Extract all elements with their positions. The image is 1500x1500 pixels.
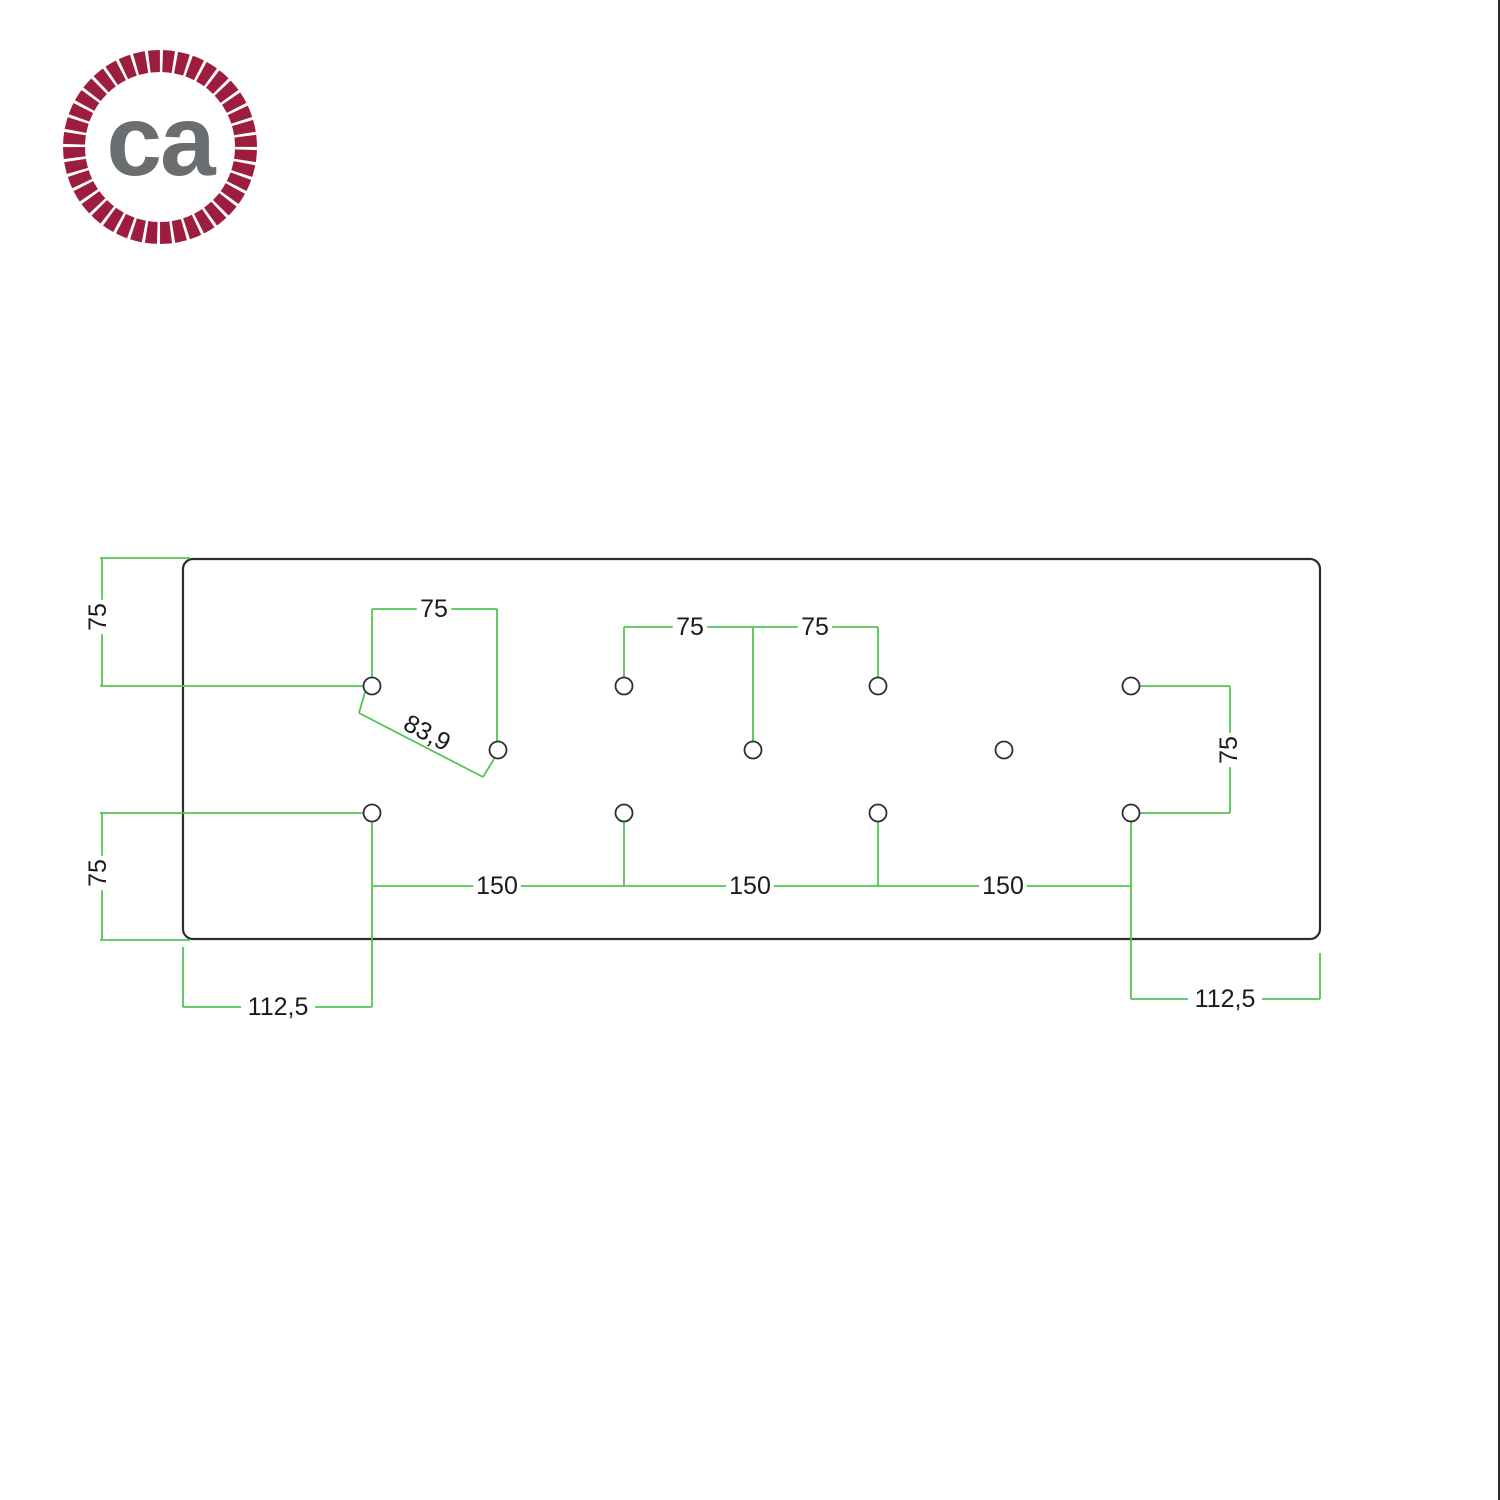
dimension-label: 75: [1215, 733, 1243, 767]
dimension-text: 75: [676, 613, 704, 641]
hole: [1123, 678, 1140, 695]
hole: [364, 678, 381, 695]
dimension-text: 83,9: [399, 709, 455, 757]
dimension-text: 75: [84, 859, 112, 887]
hole: [616, 805, 633, 822]
dimension-label: 75: [798, 613, 832, 641]
hole: [616, 678, 633, 695]
dimension-text: 150: [476, 872, 518, 900]
dimension-label: 75: [673, 613, 707, 641]
dimension-line: [359, 692, 365, 713]
dimension-text: 150: [729, 872, 771, 900]
dimension-text: 75: [801, 613, 829, 641]
dimension-label: 75: [84, 856, 112, 890]
hole: [745, 742, 762, 759]
dimension-label: 75: [417, 595, 451, 623]
dimension-line: [483, 759, 494, 777]
hole: [996, 742, 1013, 759]
hole: [870, 805, 887, 822]
dimension-label: 112,5: [241, 993, 315, 1021]
dimension-text: 112,5: [248, 993, 309, 1021]
dimension-label: 150: [726, 872, 774, 900]
dimension-label: 112,5: [1188, 985, 1262, 1013]
dimension-text: 150: [982, 872, 1024, 900]
dimension-label: 83,9: [399, 709, 455, 757]
dimension-label: 150: [979, 872, 1027, 900]
hole: [1123, 805, 1140, 822]
dimension-text: 75: [1215, 736, 1243, 764]
hole: [364, 805, 381, 822]
technical-drawing: 757583,975757575150150150112,5112,5: [0, 0, 1500, 1500]
dimension-label: 75: [84, 600, 112, 634]
dimension-text: 75: [84, 603, 112, 631]
dimension-label: 150: [473, 872, 521, 900]
hole: [490, 742, 507, 759]
hole: [870, 678, 887, 695]
dimension-text: 112,5: [1195, 985, 1256, 1013]
dimension-text: 75: [420, 595, 448, 623]
